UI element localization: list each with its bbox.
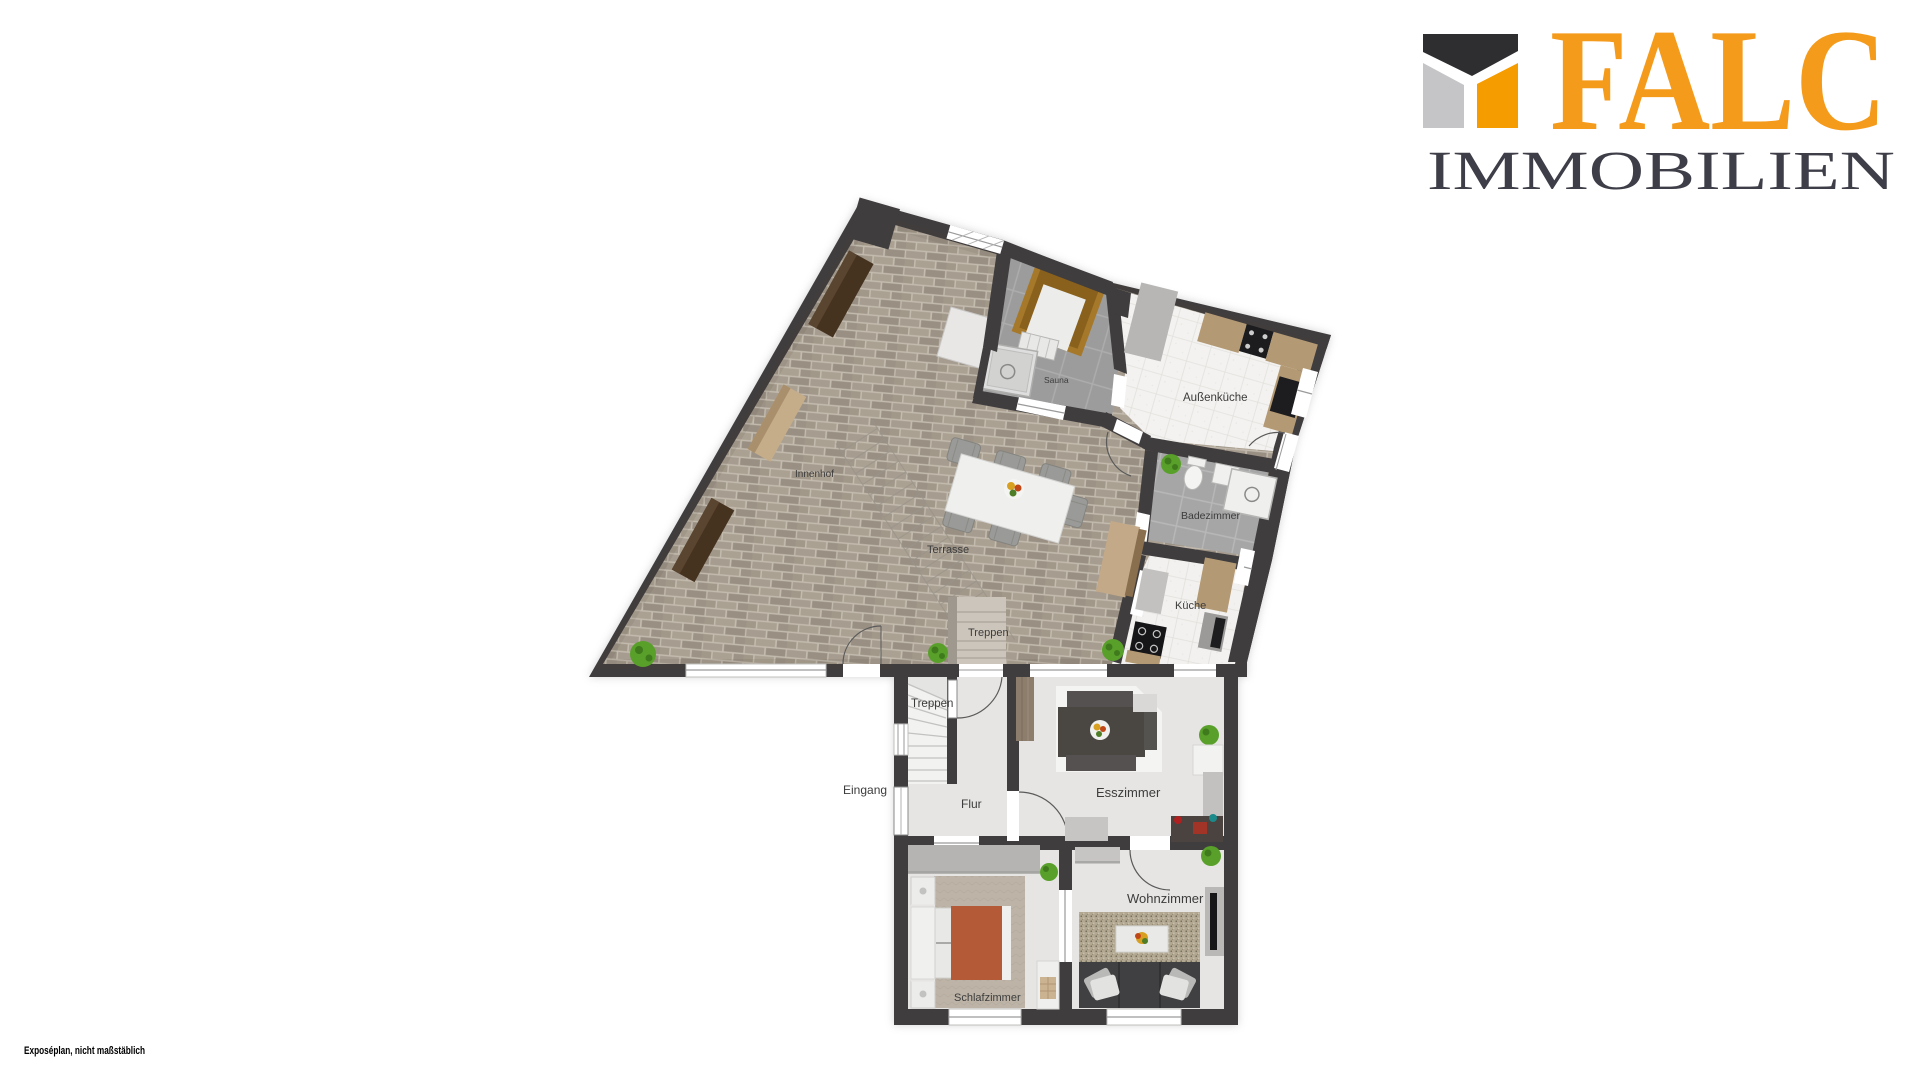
svg-text:Schlafzimmer: Schlafzimmer — [954, 992, 1021, 1004]
svg-text:Badezimmer: Badezimmer — [1181, 510, 1240, 522]
svg-text:Wohnzimmer: Wohnzimmer — [1127, 891, 1204, 906]
svg-text:Flur: Flur — [961, 797, 982, 811]
svg-text:Außenküche: Außenküche — [1183, 392, 1248, 404]
svg-text:Exposéplan, nicht maßstäblich: Exposéplan, nicht maßstäblich — [24, 1045, 145, 1057]
svg-text:Sauna: Sauna — [1044, 375, 1069, 385]
svg-text:Küche: Küche — [1175, 600, 1206, 612]
svg-text:Esszimmer: Esszimmer — [1096, 785, 1161, 800]
svg-text:Eingang: Eingang — [843, 783, 887, 797]
svg-text:Innenhof: Innenhof — [795, 469, 834, 480]
svg-text:FALC: FALC — [1550, 0, 1887, 161]
svg-text:Treppen: Treppen — [911, 698, 953, 710]
svg-text:IMMOBILIEN: IMMOBILIEN — [1427, 140, 1895, 201]
svg-text:Terrasse: Terrasse — [927, 544, 969, 556]
svg-text:Treppen: Treppen — [968, 627, 1009, 639]
